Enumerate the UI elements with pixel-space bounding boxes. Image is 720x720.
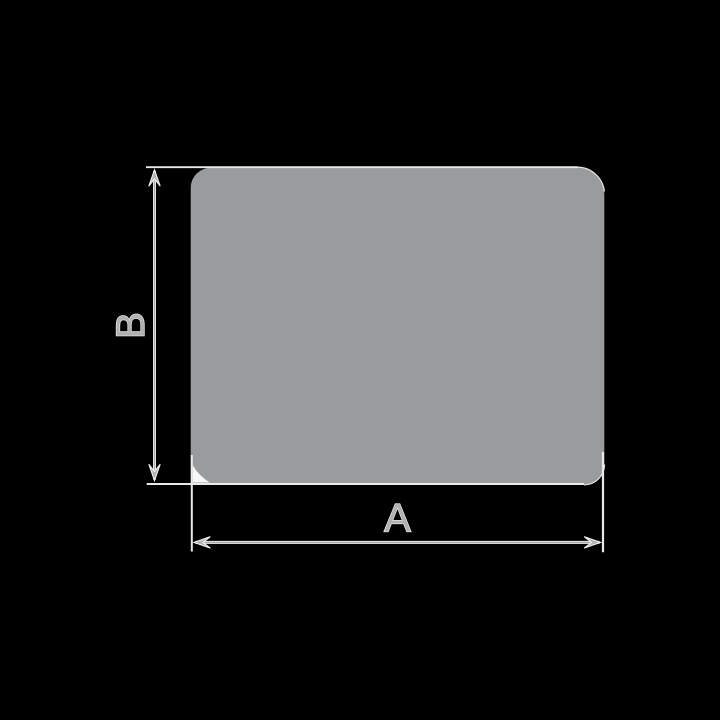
svg-text:B: B	[109, 312, 153, 339]
svg-text:A: A	[384, 497, 411, 541]
